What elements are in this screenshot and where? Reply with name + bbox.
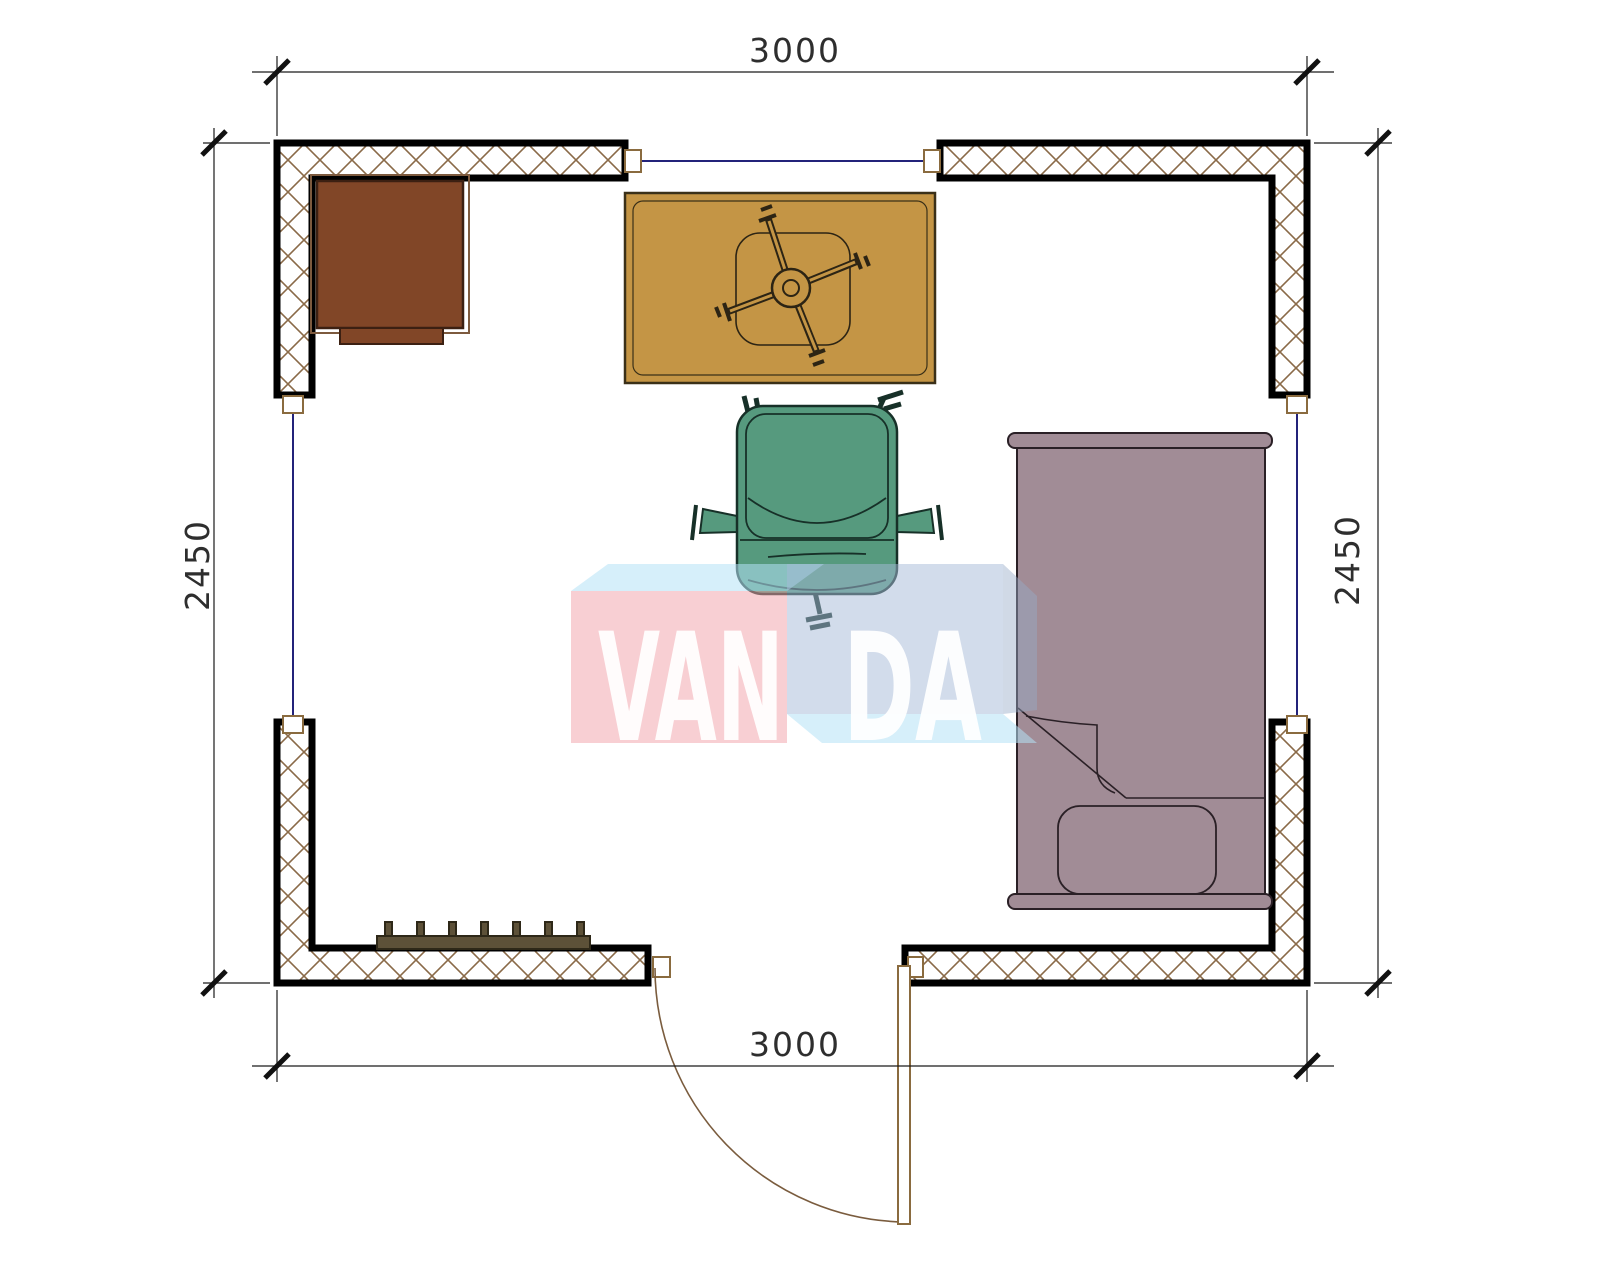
bed-footboard [1008,433,1272,448]
watermark-text-van: VAN [598,602,784,776]
door-swing-arc [655,968,904,1222]
window-right-jamb-bottom [1287,716,1307,733]
wall-top-right [940,143,1307,395]
dim-label-bottom: 3000 [749,1025,841,1064]
vanda-watermark: VAN DA [571,564,1037,776]
window-top-jamb-right [924,150,940,172]
cabinet-body [317,181,463,328]
window-top [625,150,940,172]
floor-plan-drawing: 3000 3000 2450 2450 VAN DA [0,0,1600,1280]
window-top-jamb-left [625,150,641,172]
door [653,957,923,1224]
window-left-jamb-top [283,396,303,413]
window-left [283,396,303,733]
radiator-body [377,936,590,949]
bed-mattress [1017,440,1265,902]
watermark-top-face [571,564,824,591]
cabinet-drawer [340,328,443,344]
floor-plan-canvas: 3000 3000 2450 2450 VAN DA [0,0,1600,1280]
window-right-jamb-top [1287,396,1307,413]
bed-headboard [1008,894,1272,909]
cabinet [311,175,469,344]
radiator [377,922,590,949]
window-right [1287,396,1307,733]
dim-label-top: 3000 [749,31,841,70]
dim-label-left: 2450 [178,519,217,611]
window-left-jamb-bottom [283,716,303,733]
desk-with-chair-base [625,193,935,383]
dim-label-right: 2450 [1328,514,1367,606]
watermark-text-da: DA [843,602,982,776]
single-bed [1008,433,1272,909]
door-leaf [898,966,910,1224]
radiator-fins [385,922,584,936]
